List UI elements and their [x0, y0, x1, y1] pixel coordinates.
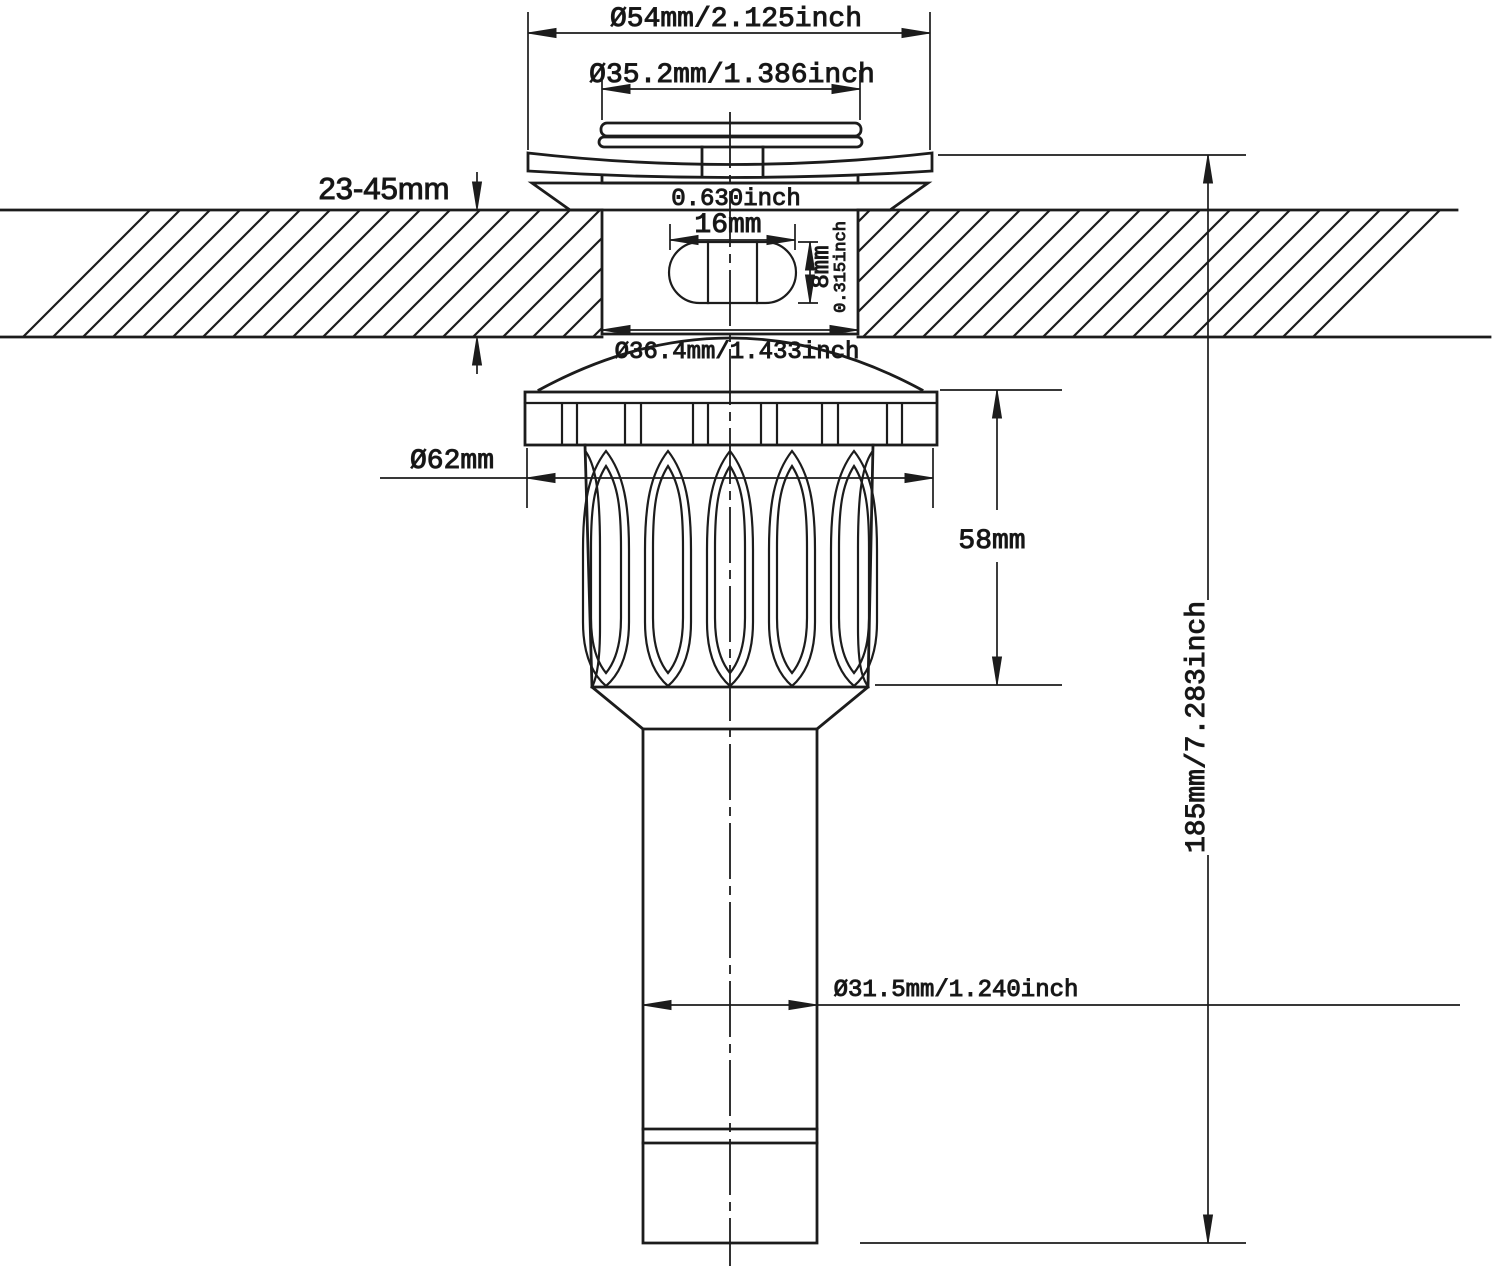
arrowhead: [1204, 1215, 1213, 1243]
locknut-ring: [525, 392, 937, 445]
arrowhead: [789, 1001, 817, 1010]
drawing-canvas: Ø54mm/2.125inch Ø35.2mm/1.386inch 23-45m…: [0, 0, 1500, 1268]
dim-label-overflow-width-mm: 16mm: [694, 210, 761, 241]
arrowhead: [527, 474, 555, 483]
dim-label-mounting-thickness: 23-45mm: [319, 171, 450, 206]
arrowhead: [528, 29, 556, 38]
dim-label-cap-outer: Ø54mm/2.125inch: [610, 4, 862, 35]
dim-label-cap-top: Ø35.2mm/1.386inch: [589, 60, 875, 91]
drain-dimension-drawing: Ø54mm/2.125inch Ø35.2mm/1.386inch 23-45m…: [0, 0, 1500, 1268]
overflow-slot-outline: [669, 242, 796, 303]
dim-label-tailpipe: Ø31.5mm/1.240inch: [834, 977, 1079, 1004]
countertop-hatch-right: [858, 210, 1455, 337]
cap-plate-top: [601, 123, 861, 136]
overflow-slot: [669, 242, 796, 303]
arrowhead: [767, 236, 795, 245]
dim-label-thread-body: Ø36.4mm/1.433inch: [615, 339, 860, 366]
dim-label-locknut-height: 58mm: [958, 526, 1025, 557]
arrowhead: [902, 29, 930, 38]
locknut-ring-slots: [562, 404, 902, 444]
arrowhead: [1204, 155, 1213, 183]
arrowhead: [473, 337, 482, 365]
arrowhead: [993, 657, 1002, 685]
arrowhead: [473, 182, 482, 210]
dim-label-overflow-height-inch: 0.315inch: [832, 221, 851, 313]
arrowhead: [905, 474, 933, 483]
dim-overflow-height: 8mm 0.315inch: [798, 221, 851, 313]
dim-overflow-width: 0.630inch 16mm: [670, 186, 801, 250]
dim-cap-top: Ø35.2mm/1.386inch: [589, 60, 875, 120]
countertop-hatch-left: [18, 210, 602, 337]
locknut-ring-outline: [525, 392, 937, 445]
dim-label-overall-height: 185mm/7.283inch: [1182, 601, 1213, 853]
dim-label-locknut-diameter: Ø62mm: [410, 446, 494, 477]
knurl-rib: [645, 451, 691, 686]
knurl-rib: [769, 451, 815, 686]
overflow-slot-chords: [708, 242, 757, 303]
drawing-root: Ø54mm/2.125inch Ø35.2mm/1.386inch 23-45m…: [0, 4, 1490, 1266]
arrowhead: [643, 1001, 671, 1010]
dim-label-overflow-width-inch: 0.630inch: [671, 186, 801, 213]
cap-stem: [702, 147, 763, 176]
arrowhead: [993, 390, 1002, 418]
dim-tailpipe: Ø31.5mm/1.240inch: [643, 977, 1460, 1010]
